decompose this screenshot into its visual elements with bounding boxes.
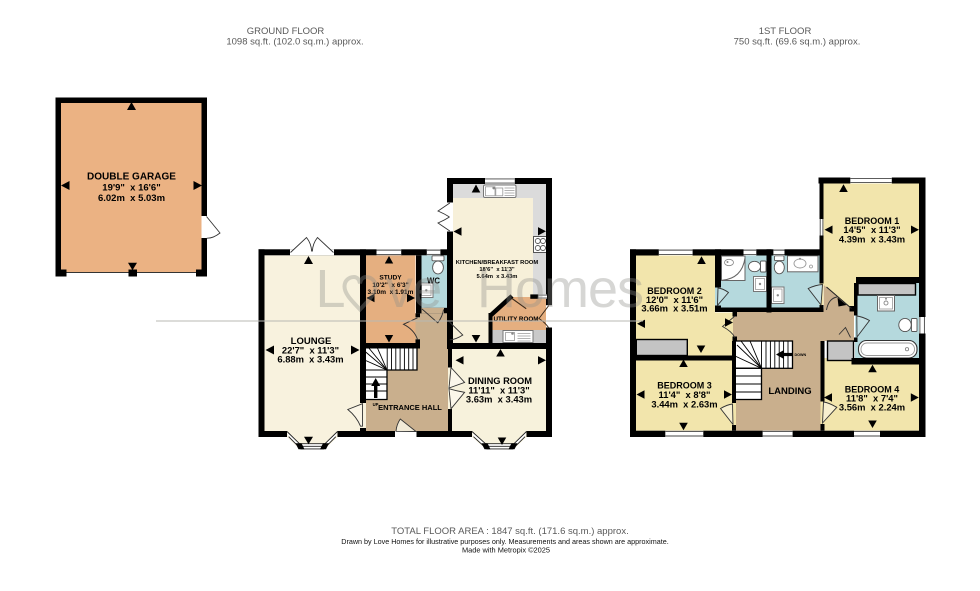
svg-text:1ST FLOOR: 1ST FLOOR xyxy=(759,26,812,37)
svg-text:3.44m x 2.63m: 3.44m x 2.63m xyxy=(651,399,717,410)
svg-text:1098 sq.ft. (102.0 sq.m.) appr: 1098 sq.ft. (102.0 sq.m.) approx. xyxy=(226,37,363,48)
svg-text:6.02m x 5.03m: 6.02m x 5.03m xyxy=(98,193,165,204)
svg-text:4.39m x 3.43m: 4.39m x 3.43m xyxy=(839,234,905,245)
svg-text:ENTRANCE HALL: ENTRANCE HALL xyxy=(378,403,442,412)
svg-text:TOTAL FLOOR AREA : 1847 sq.ft.: TOTAL FLOOR AREA : 1847 sq.ft. (171.6 sq… xyxy=(391,526,628,537)
svg-text:Homes: Homes xyxy=(477,259,643,319)
svg-text:ve: ve xyxy=(386,259,441,319)
svg-text:DOWN: DOWN xyxy=(795,353,807,357)
svg-text:LANDING: LANDING xyxy=(768,386,811,397)
svg-text:3.63m x 3.43m: 3.63m x 3.43m xyxy=(466,393,532,404)
svg-text:GROUND FLOOR: GROUND FLOOR xyxy=(247,26,325,37)
svg-text:DOUBLE GARAGE: DOUBLE GARAGE xyxy=(87,172,176,183)
svg-text:UP: UP xyxy=(373,402,379,407)
svg-text:Drawn by Love Homes for illust: Drawn by Love Homes for illustrative pur… xyxy=(341,537,668,546)
svg-text:3.66m x 3.51m: 3.66m x 3.51m xyxy=(641,303,707,314)
svg-text:3.56m x 2.24m: 3.56m x 2.24m xyxy=(839,402,905,413)
svg-text:19'9" x 16'6": 19'9" x 16'6" xyxy=(102,183,160,194)
svg-text:750 sq.ft. (69.6 sq.m.) approx: 750 sq.ft. (69.6 sq.m.) approx. xyxy=(734,37,861,48)
svg-text:Made with Metropix ©2025: Made with Metropix ©2025 xyxy=(462,546,550,555)
svg-text:6.88m x 3.43m: 6.88m x 3.43m xyxy=(277,354,343,365)
svg-text:L: L xyxy=(316,259,346,319)
